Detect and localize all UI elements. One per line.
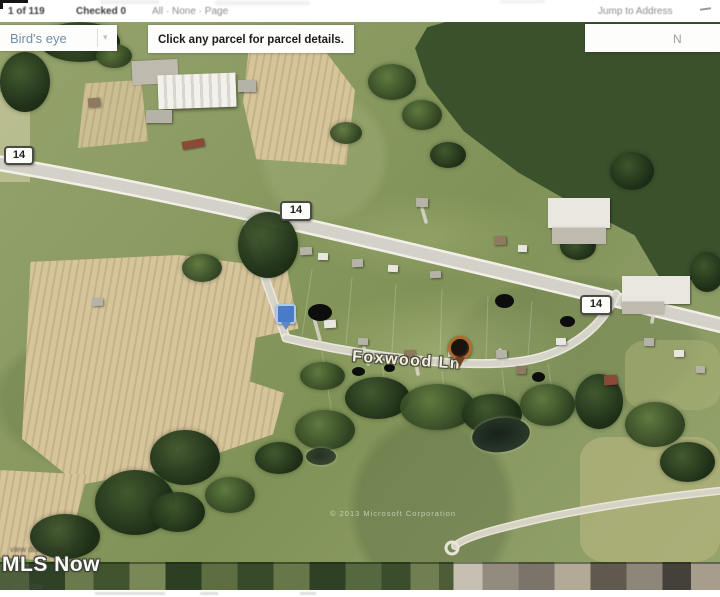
tree	[330, 122, 362, 144]
blue-pushpin-marker[interactable]	[276, 304, 296, 330]
house	[300, 247, 312, 256]
commercial-building	[157, 73, 236, 110]
house	[496, 350, 507, 359]
outbuilding	[238, 80, 256, 92]
bottom-margin	[0, 590, 720, 597]
barn	[604, 375, 618, 386]
map-dark-spot	[560, 316, 575, 327]
property-pin-marker[interactable]	[448, 336, 474, 368]
scan-artifact	[700, 7, 711, 11]
house	[644, 338, 654, 346]
tree	[238, 212, 298, 278]
commercial-building	[548, 198, 610, 228]
tree	[368, 64, 416, 100]
house	[318, 253, 328, 260]
tree	[255, 442, 303, 474]
compass-panel: N	[585, 24, 720, 52]
scan-artifact	[95, 592, 165, 595]
route-14-shield: 14	[4, 146, 34, 165]
house	[352, 259, 363, 267]
aerial-map[interactable]: 14 14 14 Foxwood Ln © 2013 Microsoft Cor…	[0, 22, 720, 562]
map-dark-spot	[308, 304, 332, 321]
house	[92, 298, 103, 306]
tree	[625, 402, 685, 447]
selection-links[interactable]: All · None · Page	[152, 6, 228, 17]
gravel-road-casing	[455, 490, 720, 546]
jump-to-address-link[interactable]: Jump to Address	[598, 6, 672, 17]
route-shield-label: 14	[590, 298, 602, 310]
commercial-building	[622, 276, 690, 304]
tree	[182, 254, 222, 282]
house	[388, 265, 398, 273]
scan-artifact	[200, 592, 218, 595]
pin-tail-icon	[455, 357, 465, 367]
map-dark-spot	[495, 294, 514, 308]
mls-now-watermark: MLS Now	[2, 581, 43, 591]
house	[358, 338, 368, 346]
checked-count-label: Checked 0	[76, 6, 126, 17]
imagery-copyright: © 2013 Microsoft Corporation	[330, 509, 456, 518]
scan-artifact	[300, 592, 316, 595]
house	[518, 245, 527, 252]
tree	[295, 410, 355, 450]
pushpin-tail-icon	[281, 322, 291, 330]
scan-artifact	[215, 1, 310, 5]
divider	[97, 29, 98, 47]
house	[674, 350, 684, 357]
route-shield-label: 14	[290, 204, 302, 216]
route-14-shield: 14	[280, 201, 312, 221]
house	[416, 198, 428, 207]
scan-artifact	[100, 0, 160, 4]
tree	[402, 100, 442, 130]
tree	[690, 252, 720, 292]
tree	[205, 477, 255, 513]
toolbar: 1 of 119 Checked 0 All · None · Page Jum…	[0, 0, 720, 22]
tree	[0, 52, 50, 112]
house	[430, 271, 441, 278]
mls-now-logo: MLS Now	[2, 553, 100, 577]
house	[494, 236, 506, 246]
route-14-shield: 14	[580, 295, 612, 315]
scan-artifact	[0, 2, 3, 9]
tree	[610, 152, 654, 190]
pixelated-map-strip	[0, 562, 720, 592]
pond	[306, 448, 336, 465]
tree	[520, 384, 575, 426]
view-mode-selector[interactable]: Bird's eye ▾	[0, 25, 117, 51]
parking-lot	[622, 302, 664, 314]
parking-lot	[552, 228, 606, 244]
house	[556, 338, 566, 345]
house	[696, 366, 705, 373]
house	[324, 320, 337, 329]
map-dark-spot	[352, 367, 365, 376]
parcel-instruction-text: Click any parcel for parcel details.	[158, 34, 344, 46]
view-mode-label: Bird's eye	[10, 31, 67, 46]
house	[516, 366, 526, 374]
chevron-down-icon: ▾	[103, 32, 108, 43]
screen: 1 of 119 Checked 0 All · None · Page Jum…	[0, 0, 720, 597]
tree	[300, 362, 345, 390]
route-shield-label: 14	[13, 149, 25, 161]
scan-artifact	[500, 0, 545, 3]
tree	[660, 442, 715, 482]
parcel-instruction-tooltip: Click any parcel for parcel details.	[148, 25, 354, 53]
tree	[430, 142, 466, 168]
barn	[88, 97, 101, 107]
tree	[150, 492, 205, 532]
pagination-label: 1 of 119	[8, 6, 45, 17]
map-dark-spot	[532, 372, 545, 382]
outbuilding	[146, 110, 172, 123]
scan-artifact	[0, 0, 28, 3]
north-indicator: N	[673, 32, 682, 46]
pushpin-head-icon	[276, 304, 296, 324]
